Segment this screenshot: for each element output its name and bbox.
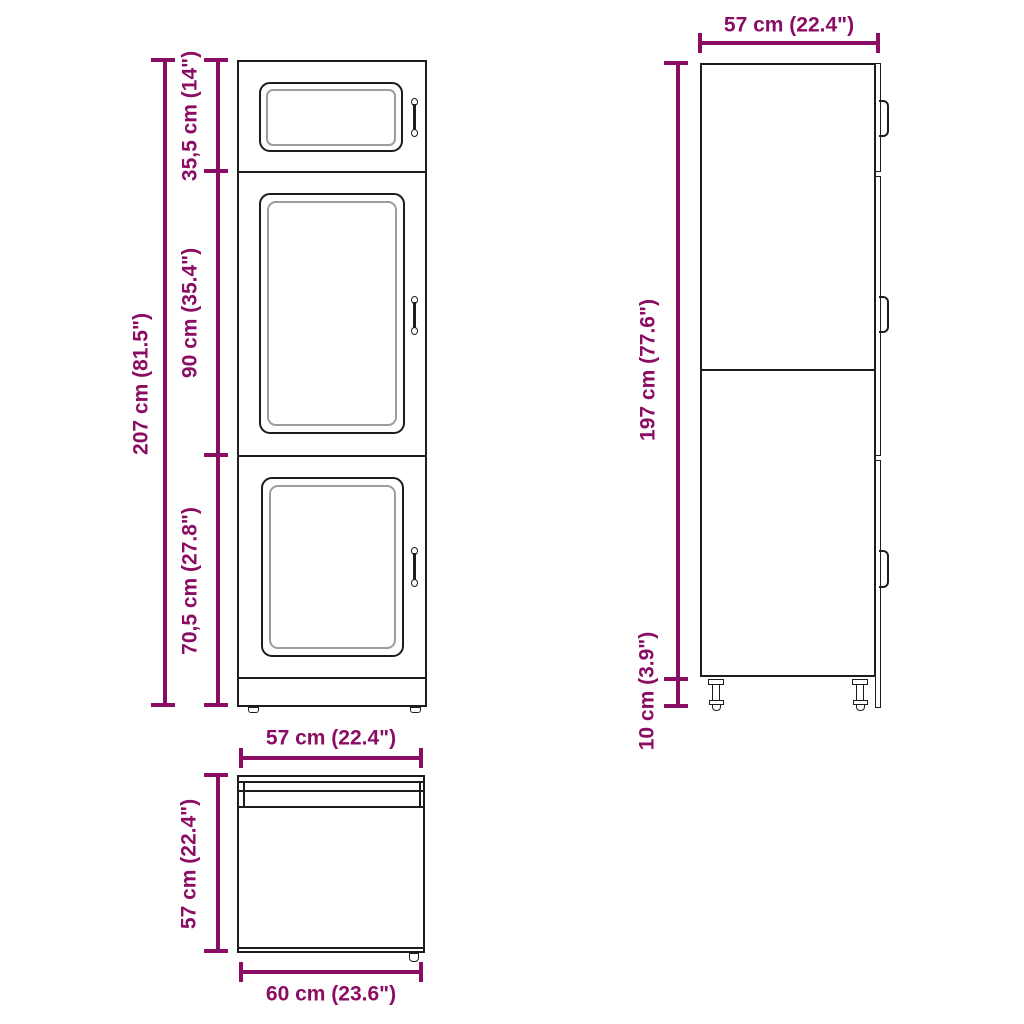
top-door-panel bbox=[266, 89, 396, 146]
dim-cap bbox=[204, 773, 228, 777]
bottom-door-handle-icon bbox=[411, 579, 418, 587]
dim-cap bbox=[204, 58, 228, 62]
dim-line-total-height bbox=[163, 60, 167, 707]
dim-cap bbox=[151, 58, 175, 62]
dim-cap bbox=[151, 703, 175, 707]
top-depth-label: 57 cm (22.4") bbox=[179, 799, 200, 929]
top-doorwidth-label: 57 cm (22.4") bbox=[266, 728, 396, 749]
dim-cap bbox=[204, 453, 228, 457]
top-width-label: 60 cm (23.6") bbox=[266, 984, 396, 1005]
dim-cap bbox=[664, 677, 688, 681]
dim-line-top-depth bbox=[216, 775, 220, 953]
top-view-handle-icon bbox=[409, 953, 419, 962]
front-divider-top bbox=[237, 171, 427, 173]
front-plinth-line bbox=[237, 677, 427, 679]
dim-cap bbox=[239, 748, 243, 768]
dim-line-top-width bbox=[241, 970, 422, 974]
dim-line-side-width bbox=[700, 41, 880, 45]
bottom-door-handle-bar bbox=[413, 553, 416, 582]
side-width-label: 57 cm (22.4") bbox=[724, 15, 854, 36]
top-front-line-2 bbox=[237, 790, 425, 792]
side-foot-right-pad bbox=[856, 704, 865, 711]
top-front-line-3 bbox=[237, 806, 425, 808]
legs-height-label: 10 cm (3.9") bbox=[637, 632, 658, 751]
side-foot-left-pad bbox=[712, 704, 721, 711]
dim-cap bbox=[419, 962, 423, 982]
bottom-door-panel bbox=[269, 485, 396, 649]
side-handle-top-icon bbox=[879, 100, 889, 137]
middle-door-panel bbox=[267, 201, 397, 426]
dim-cap bbox=[698, 33, 702, 53]
front-foot-left bbox=[248, 707, 259, 713]
top-front-line-1 bbox=[237, 781, 425, 783]
dim-cap bbox=[204, 949, 228, 953]
cabinet-top-outline bbox=[237, 775, 425, 953]
dim-cap bbox=[876, 33, 880, 53]
front-foot-right bbox=[410, 707, 421, 713]
section-bottom-label: 70,5 cm (27.8") bbox=[180, 507, 201, 655]
dim-cap bbox=[664, 704, 688, 708]
section-middle-label: 90 cm (35.4") bbox=[180, 248, 201, 378]
top-front-tick-left bbox=[243, 781, 245, 806]
top-front-tick-right bbox=[419, 781, 421, 806]
dim-cap bbox=[204, 703, 228, 707]
dim-line-side-height bbox=[676, 63, 680, 708]
dim-cap bbox=[239, 962, 243, 982]
side-mid-line bbox=[700, 369, 876, 371]
front-divider-middle bbox=[237, 455, 427, 457]
side-handle-bottom-icon bbox=[879, 550, 889, 588]
side-handle-middle-icon bbox=[879, 296, 889, 333]
middle-door-handle-bar bbox=[413, 302, 416, 330]
dim-cap bbox=[419, 748, 423, 768]
total-height-label: 207 cm (81.5") bbox=[131, 313, 152, 455]
top-back-inner-line bbox=[237, 947, 425, 949]
dim-cap bbox=[204, 169, 228, 173]
top-door-handle-icon bbox=[411, 129, 418, 137]
dimension-diagram: 207 cm (81.5") 35,5 cm (14") 90 cm (35.4… bbox=[0, 0, 1024, 1024]
top-door-handle-bar bbox=[413, 104, 416, 132]
side-height-label: 197 cm (77.6") bbox=[638, 299, 659, 441]
dim-cap bbox=[664, 61, 688, 65]
dim-line-sections bbox=[216, 60, 220, 707]
dim-line-top-doorwidth bbox=[241, 756, 421, 760]
section-top-label: 35,5 cm (14") bbox=[180, 51, 201, 181]
middle-door-handle-icon bbox=[411, 327, 418, 335]
